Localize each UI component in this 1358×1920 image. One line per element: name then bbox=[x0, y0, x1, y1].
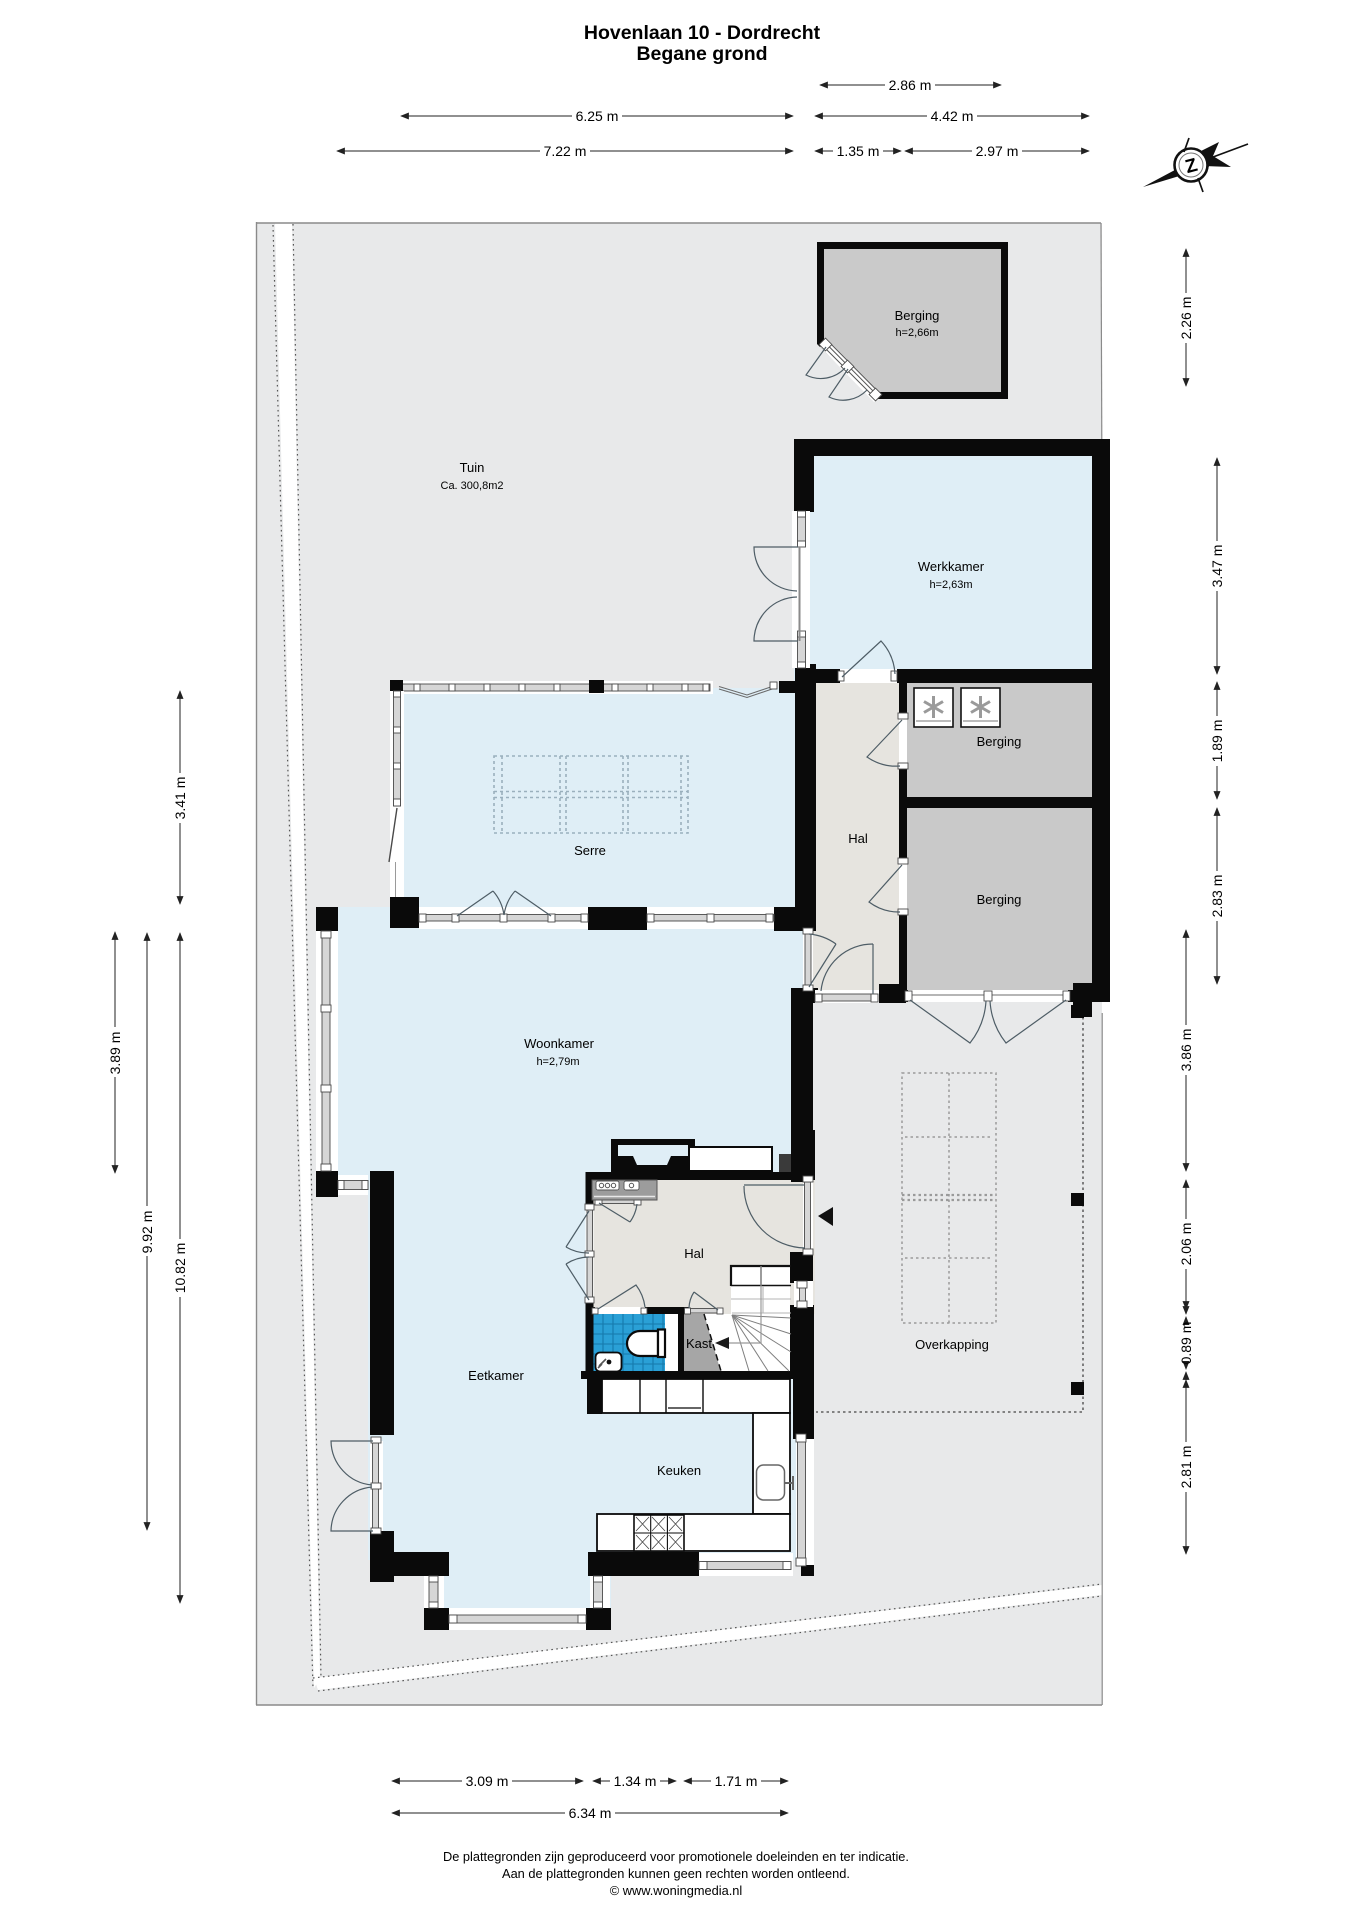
svg-text:6.25 m: 6.25 m bbox=[576, 108, 619, 124]
svg-text:3.09 m: 3.09 m bbox=[466, 1773, 509, 1789]
svg-text:Hal: Hal bbox=[848, 831, 868, 846]
svg-text:3.86 m: 3.86 m bbox=[1178, 1029, 1194, 1072]
svg-text:4.42 m: 4.42 m bbox=[931, 108, 974, 124]
svg-text:2.83 m: 2.83 m bbox=[1209, 875, 1225, 918]
svg-text:Begane grond: Begane grond bbox=[636, 43, 767, 65]
svg-text:3.47 m: 3.47 m bbox=[1209, 545, 1225, 588]
svg-text:2.86 m: 2.86 m bbox=[889, 77, 932, 93]
svg-text:1.89 m: 1.89 m bbox=[1209, 720, 1225, 763]
svg-text:2.26 m: 2.26 m bbox=[1178, 297, 1194, 340]
svg-text:h=2,79m: h=2,79m bbox=[536, 1056, 579, 1068]
svg-text:h=2,66m: h=2,66m bbox=[895, 327, 938, 339]
svg-text:3.41 m: 3.41 m bbox=[172, 777, 188, 820]
svg-text:1.34 m: 1.34 m bbox=[614, 1773, 657, 1789]
svg-text:Berging: Berging bbox=[977, 734, 1022, 749]
svg-text:1.71 m: 1.71 m bbox=[715, 1773, 758, 1789]
svg-text:Eetkamer: Eetkamer bbox=[468, 1368, 524, 1383]
svg-text:10.82 m: 10.82 m bbox=[172, 1243, 188, 1294]
svg-text:Serre: Serre bbox=[574, 843, 606, 858]
svg-text:Ca. 300,8m2: Ca. 300,8m2 bbox=[441, 480, 504, 492]
svg-text:Keuken: Keuken bbox=[657, 1463, 701, 1478]
svg-text:6.34 m: 6.34 m bbox=[569, 1805, 612, 1821]
svg-text:Kast: Kast bbox=[686, 1336, 712, 1351]
svg-text:Tuin: Tuin bbox=[460, 460, 485, 475]
svg-text:Berging: Berging bbox=[895, 308, 940, 323]
svg-text:Werkkamer: Werkkamer bbox=[918, 559, 985, 574]
svg-text:Overkapping: Overkapping bbox=[915, 1337, 989, 1352]
svg-text:7.22 m: 7.22 m bbox=[544, 143, 587, 159]
svg-text:Woonkamer: Woonkamer bbox=[524, 1036, 595, 1051]
svg-text:© www.woningmedia.nl: © www.woningmedia.nl bbox=[610, 1883, 742, 1898]
svg-text:Hovenlaan 10 - Dordrecht: Hovenlaan 10 - Dordrecht bbox=[584, 22, 821, 44]
svg-text:2.06 m: 2.06 m bbox=[1178, 1223, 1194, 1266]
svg-text:Berging: Berging bbox=[977, 892, 1022, 907]
svg-text:0.89 m: 0.89 m bbox=[1178, 1322, 1194, 1365]
svg-text:Hal: Hal bbox=[684, 1246, 704, 1261]
svg-text:h=2,63m: h=2,63m bbox=[929, 579, 972, 591]
svg-text:3.89 m: 3.89 m bbox=[107, 1032, 123, 1075]
svg-text:2.81 m: 2.81 m bbox=[1178, 1446, 1194, 1489]
svg-text:Aan de plattegronden kunnen ge: Aan de plattegronden kunnen geen rechten… bbox=[502, 1866, 850, 1881]
svg-text:De plattegronden zijn geproduc: De plattegronden zijn geproduceerd voor … bbox=[443, 1849, 909, 1864]
svg-text:9.92 m: 9.92 m bbox=[139, 1211, 155, 1254]
svg-text:1.35 m: 1.35 m bbox=[837, 143, 880, 159]
svg-text:2.97 m: 2.97 m bbox=[976, 143, 1019, 159]
